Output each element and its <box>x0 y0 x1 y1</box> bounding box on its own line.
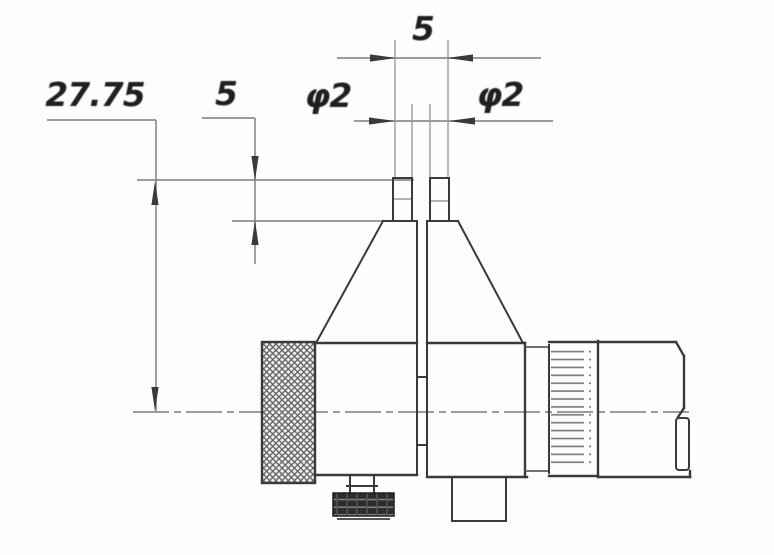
cone-right <box>427 221 523 343</box>
ratchet-grip <box>549 341 598 477</box>
knurled-grip <box>262 342 315 483</box>
end-cap <box>676 418 689 470</box>
dim-label-tip-diameter-right: φ2 <box>477 78 524 111</box>
cone-left <box>316 221 417 343</box>
dim-label-tip-span: 5 <box>412 12 434 45</box>
dim-label-tip-length: 5 <box>215 77 237 110</box>
center-slit <box>417 221 427 477</box>
technical-drawing-canvas: 27.75 5 5 φ2 φ2 <box>0 0 774 555</box>
bottom-block <box>452 477 506 521</box>
body-left <box>315 343 417 475</box>
dim-label-height-to-centerline: 27.75 <box>45 78 144 111</box>
probe-right <box>430 178 449 221</box>
collar <box>525 345 549 473</box>
body-right <box>427 343 527 477</box>
dim-label-tip-diameter-left: φ2 <box>305 79 352 112</box>
lock-screw <box>333 477 394 519</box>
probe-left <box>393 178 412 221</box>
